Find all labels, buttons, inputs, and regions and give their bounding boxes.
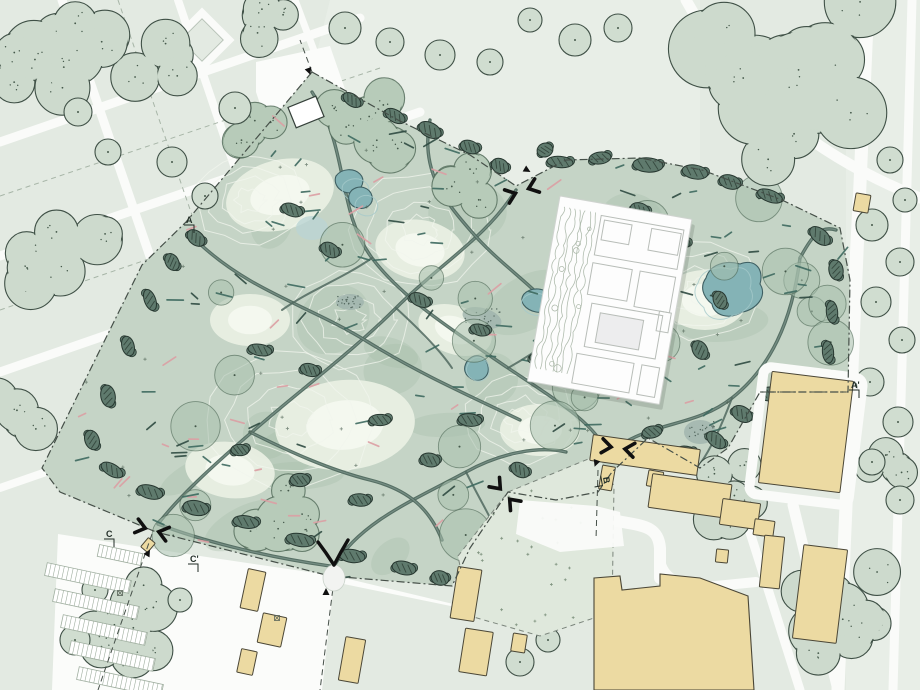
section-label: C — [106, 529, 113, 539]
scree-dot — [345, 299, 346, 300]
park-grove-speck — [246, 141, 247, 142]
tree-canopy-speck — [108, 644, 109, 645]
tree-canopy-speck — [137, 65, 138, 66]
tree-canopy-dot — [104, 233, 106, 235]
planting-tick — [486, 356, 495, 357]
tree-canopy-speck — [283, 12, 284, 13]
tree-dot — [74, 639, 76, 641]
park-grove-dot — [478, 199, 480, 201]
tree-canopy-speck — [142, 82, 143, 83]
tree-canopy-dot — [132, 627, 134, 629]
tree-dot — [871, 461, 873, 463]
tree-canopy-speck — [44, 425, 45, 426]
tree-canopy-speck — [16, 89, 17, 90]
park-grove-speck — [392, 139, 393, 140]
park-tree-dot — [430, 277, 432, 279]
tree-canopy-speck — [50, 277, 51, 278]
scree-dot — [341, 302, 342, 303]
tree-canopy-speck — [908, 478, 909, 479]
tree-canopy-dot — [176, 75, 178, 77]
tree-canopy-speck — [27, 268, 28, 269]
tree-canopy-dot — [885, 454, 887, 456]
tree-dot — [344, 27, 346, 29]
park-tree-dot — [341, 244, 343, 246]
park-grove-speck — [285, 485, 286, 486]
tree-canopy-dot — [842, 618, 844, 620]
tree-canopy-speck — [770, 170, 771, 171]
tree-dot — [871, 224, 873, 226]
tree-canopy-speck — [788, 87, 789, 88]
scree-dot — [689, 427, 690, 428]
tree-canopy-speck — [81, 12, 82, 13]
tree-canopy-speck — [168, 75, 169, 76]
park-grove-speck — [401, 142, 402, 143]
tree-canopy-speck — [859, 637, 860, 638]
tree-dot — [901, 339, 903, 341]
park-grove-speck — [387, 104, 388, 105]
park-grove-speck — [485, 207, 486, 208]
building-mass — [594, 574, 754, 690]
scree-dot — [465, 318, 466, 319]
scree-dot — [691, 427, 692, 428]
tree-canopy-speck — [848, 620, 849, 621]
tree-canopy-dot — [859, 1, 861, 3]
tree-dot — [94, 589, 96, 591]
scree-dot — [694, 432, 695, 433]
tree-canopy-speck — [886, 454, 887, 455]
tree-canopy-speck — [850, 626, 851, 627]
section-label: C' — [190, 554, 199, 564]
park-grove-dot — [469, 168, 471, 170]
park-grove-speck — [476, 168, 477, 169]
tree-canopy-speck — [49, 225, 50, 226]
tree-canopy-speck — [849, 119, 850, 120]
tree-canopy-speck — [111, 50, 112, 51]
planting-tick — [416, 395, 424, 396]
park-grove-speck — [379, 100, 380, 101]
scree-dot — [348, 303, 349, 304]
park-grove-speck — [308, 515, 309, 516]
park-grove-speck — [274, 521, 275, 522]
tree-canopy-speck — [156, 601, 157, 602]
planting-tick — [431, 243, 442, 244]
tree-canopy-speck — [730, 526, 731, 527]
building — [753, 519, 775, 538]
tree-canopy-speck — [261, 45, 262, 46]
park-grove-dot — [382, 104, 384, 106]
scree-dot — [498, 312, 499, 313]
tree-canopy-speck — [11, 61, 12, 62]
tree-canopy-speck — [792, 135, 793, 136]
building — [758, 371, 853, 492]
tree-canopy-speck — [728, 25, 729, 26]
park-grove-speck — [335, 106, 336, 107]
tree-canopy-speck — [155, 652, 156, 653]
scree-dot — [713, 425, 714, 426]
park-tree-dot — [554, 425, 556, 427]
tree-canopy-speck — [68, 60, 69, 61]
scree-dot — [695, 435, 696, 436]
planting-tick — [374, 259, 387, 260]
scree-dot — [493, 315, 494, 316]
tree-canopy-dot — [901, 472, 903, 474]
planting-tick — [729, 386, 739, 387]
tree-canopy-speck — [37, 53, 38, 54]
scree-dot — [484, 316, 485, 317]
tree-canopy-speck — [907, 471, 908, 472]
tree-canopy-speck — [106, 638, 107, 639]
tree-canopy-speck — [47, 227, 48, 228]
tree-canopy-speck — [35, 245, 36, 246]
tree-canopy-speck — [713, 467, 714, 468]
park-grove-dot — [368, 116, 370, 118]
tree-canopy-dot — [62, 87, 64, 89]
park-grove-speck — [283, 522, 284, 523]
tree-canopy-speck — [67, 270, 68, 271]
park-grove-speck — [395, 144, 396, 145]
tree-canopy-speck — [767, 167, 768, 168]
tree-dot — [179, 599, 181, 601]
tree-canopy-speck — [17, 85, 18, 86]
tree-canopy-speck — [163, 40, 164, 41]
building — [853, 193, 871, 213]
tree-canopy-speck — [19, 405, 20, 406]
scree-dot — [706, 427, 707, 428]
tree-canopy-speck — [258, 26, 259, 27]
park-grove-dot — [451, 186, 453, 188]
park-grove-speck — [290, 486, 291, 487]
tree-dot — [889, 159, 891, 161]
tree-canopy-speck — [708, 476, 709, 477]
tree-canopy-dot — [134, 76, 136, 78]
park-grove-speck — [348, 125, 349, 126]
tree-canopy-dot — [282, 14, 284, 16]
tree-canopy-dot — [767, 158, 769, 160]
tree-canopy-speck — [172, 33, 173, 34]
scree-dot — [337, 304, 338, 305]
tree-canopy-dot — [56, 231, 58, 233]
tree-canopy-speck — [893, 456, 894, 457]
park-grove-dot — [277, 528, 279, 530]
planting-tick — [783, 225, 791, 226]
tree-canopy-speck — [740, 68, 741, 69]
scree-dot — [490, 320, 491, 321]
tree-dot — [529, 19, 531, 21]
tree-canopy-speck — [186, 66, 187, 67]
tree-dot — [204, 195, 206, 197]
park-grove-dot — [376, 139, 378, 141]
scree-dot — [353, 303, 354, 304]
park-grove-speck — [446, 188, 447, 189]
tree-canopy-speck — [796, 85, 797, 86]
tree-canopy-speck — [889, 451, 890, 452]
park-tree-dot — [452, 494, 454, 496]
tree-canopy-speck — [887, 564, 888, 565]
scree-dot — [344, 303, 345, 304]
tree-canopy-dot — [742, 77, 744, 79]
scree-dot — [338, 301, 339, 302]
tree-canopy-speck — [808, 650, 809, 651]
scree-dot — [352, 301, 353, 302]
tree-canopy-dot — [798, 69, 800, 71]
tree-canopy-speck — [14, 409, 15, 410]
tree-canopy-speck — [818, 657, 819, 658]
gate-court — [323, 565, 345, 591]
tree-canopy-speck — [100, 239, 101, 240]
park-grove-speck — [272, 120, 273, 121]
tree-canopy-speck — [165, 38, 166, 39]
park-grove-speck — [250, 116, 251, 117]
tree-canopy-speck — [61, 58, 62, 59]
tree-canopy-speck — [146, 608, 147, 609]
tree-dot — [107, 151, 109, 153]
scree-dot — [712, 427, 713, 428]
tree-canopy-speck — [836, 99, 837, 100]
tree-canopy-speck — [733, 81, 734, 82]
tree-canopy-speck — [268, 4, 269, 5]
park-grove-speck — [465, 161, 466, 162]
scree-dot — [491, 308, 492, 309]
park-grove-dot — [397, 148, 399, 150]
tree-canopy-dot — [13, 52, 15, 54]
building — [715, 549, 728, 563]
tree-canopy-speck — [258, 12, 259, 13]
park-grove-speck — [360, 118, 361, 119]
tree-canopy-speck — [853, 605, 854, 606]
tree-canopy-speck — [110, 232, 111, 233]
tree-canopy-speck — [285, 8, 286, 9]
park-grove-speck — [310, 519, 311, 520]
tree-canopy-speck — [81, 31, 82, 32]
park-grove-dot — [333, 108, 335, 110]
tree-canopy-speck — [145, 609, 146, 610]
park-grove-speck — [376, 146, 377, 147]
tree-canopy-dot — [74, 22, 76, 24]
tree-canopy-speck — [744, 499, 745, 500]
planting-tick — [690, 191, 697, 192]
tree-canopy-speck — [264, 26, 265, 27]
tree-canopy-speck — [284, 8, 285, 9]
scree-dot — [342, 299, 343, 300]
tree-canopy-speck — [726, 27, 727, 28]
park-grove-speck — [353, 125, 354, 126]
tree-canopy-speck — [714, 469, 715, 470]
tree-canopy-dot — [261, 8, 263, 10]
planting-tick — [749, 251, 758, 252]
planting-tick — [798, 284, 806, 285]
scree-dot — [488, 321, 489, 322]
tree-canopy-speck — [861, 622, 862, 623]
tree-canopy-speck — [24, 265, 25, 266]
tree-canopy-speck — [51, 237, 52, 238]
park-grove-speck — [373, 150, 374, 151]
tree-canopy-speck — [172, 69, 173, 70]
planting-tick — [172, 452, 187, 453]
park-grove-speck — [236, 143, 237, 144]
park-grove-speck — [304, 529, 305, 530]
scree-dot — [705, 428, 706, 429]
tree-canopy-speck — [859, 14, 860, 15]
park-grove-speck — [274, 537, 275, 538]
scree-dot — [713, 421, 714, 422]
tree-canopy-speck — [250, 26, 251, 27]
park-tree-dot — [465, 534, 467, 536]
park-grove-speck — [476, 206, 477, 207]
tree-canopy-speck — [76, 50, 77, 51]
scree-dot — [484, 318, 485, 319]
park-grove-speck — [332, 105, 333, 106]
tree-canopy-speck — [31, 67, 32, 68]
tree-dot — [389, 41, 391, 43]
tree-canopy-speck — [866, 113, 867, 114]
tree-canopy-speck — [10, 84, 11, 85]
tree-dot — [489, 61, 491, 63]
scree-dot — [359, 304, 360, 305]
scree-dot — [357, 295, 358, 296]
tree-canopy-dot — [143, 584, 145, 586]
scree-dot — [359, 306, 360, 307]
tree-dot — [77, 111, 79, 113]
park-grove-speck — [480, 199, 481, 200]
tree-canopy-speck — [842, 10, 843, 11]
tree-dot — [519, 661, 521, 663]
tree-canopy-speck — [128, 81, 129, 82]
tree-canopy-dot — [733, 495, 735, 497]
scree-dot — [711, 426, 712, 427]
tree-canopy-dot — [34, 59, 36, 61]
tree-canopy-dot — [16, 409, 18, 411]
tree-canopy-dot — [876, 571, 878, 573]
tree-dot — [547, 639, 549, 641]
tree-canopy-speck — [5, 46, 6, 47]
tree-canopy-dot — [35, 428, 37, 430]
park-tree-dot — [195, 425, 197, 427]
park-tree-dot — [723, 265, 725, 267]
tree-canopy-speck — [758, 149, 759, 150]
park-grove-dot — [250, 530, 252, 532]
masterplan-svg: AA'BCC' — [0, 0, 920, 690]
park-tree-dot — [458, 446, 460, 448]
park-tree-dot — [473, 340, 475, 342]
tree-canopy-speck — [896, 474, 897, 475]
tree-canopy-speck — [799, 76, 800, 77]
tree-dot — [234, 107, 236, 109]
park-tree-dot — [584, 396, 586, 398]
tree-canopy-dot — [13, 81, 15, 83]
tree-dot — [574, 39, 576, 41]
planting-tick — [175, 456, 186, 457]
tree-canopy-speck — [745, 461, 746, 462]
park-grove-speck — [340, 134, 341, 135]
park-grove-speck — [241, 142, 242, 143]
park-tree-dot — [234, 374, 236, 376]
park-grove-speck — [473, 173, 474, 174]
tree-canopy-speck — [137, 651, 138, 652]
tree-canopy-speck — [50, 91, 51, 92]
scree-dot — [702, 429, 703, 430]
planting-tick — [574, 428, 585, 429]
park-grove-speck — [373, 145, 374, 146]
tree-dot — [899, 499, 901, 501]
park-grove-speck — [336, 110, 337, 111]
tree-canopy-speck — [869, 568, 870, 569]
site-plan-canvas: AA'BCC' — [0, 0, 920, 690]
tree-canopy-speck — [835, 64, 836, 65]
tree-canopy-speck — [63, 61, 64, 62]
park-grove-speck — [459, 192, 460, 193]
park-tree-dot — [474, 297, 476, 299]
tree-dot — [869, 381, 871, 383]
tree-canopy-speck — [734, 76, 735, 77]
tree-canopy-speck — [102, 48, 103, 49]
park-grove-dot — [287, 490, 289, 492]
tree-dot — [897, 421, 899, 423]
park-grove-dot — [241, 139, 243, 141]
tree-canopy-dot — [817, 652, 819, 654]
tree-canopy-speck — [42, 418, 43, 419]
tree-canopy-speck — [78, 15, 79, 16]
tree-canopy-dot — [744, 464, 746, 466]
park-grove-speck — [276, 130, 277, 131]
park-grove-speck — [454, 181, 455, 182]
scree-dot — [689, 436, 690, 437]
tree-canopy-dot — [152, 607, 154, 609]
park-grove-dot — [345, 126, 347, 128]
tree-canopy-speck — [259, 2, 260, 3]
tree-canopy-dot — [714, 473, 716, 475]
planting-tick — [301, 191, 309, 192]
tree-canopy-dot — [101, 41, 103, 43]
tree-canopy-dot — [165, 43, 167, 45]
park-grove-speck — [280, 490, 281, 491]
tree-dot — [171, 161, 173, 163]
park-grove-speck — [375, 112, 376, 113]
building — [511, 633, 528, 653]
tree-dot — [875, 301, 877, 303]
pond — [349, 187, 373, 208]
tree-canopy-speck — [887, 582, 888, 583]
scree-dot — [496, 308, 497, 309]
tree-canopy-speck — [33, 425, 34, 426]
tree-dot — [439, 54, 441, 56]
tree-canopy-speck — [795, 141, 796, 142]
scree-dot — [355, 297, 356, 298]
scree-dot — [337, 296, 338, 297]
tree-dot — [617, 27, 619, 29]
planting-tick — [800, 297, 812, 298]
park-tree-dot — [784, 270, 786, 272]
tree-canopy-dot — [63, 66, 65, 68]
park-grove-dot — [254, 120, 256, 122]
scree-dot — [353, 298, 354, 299]
lawn-core — [228, 306, 272, 335]
tree-canopy-speck — [739, 465, 740, 466]
tree-canopy-dot — [793, 133, 795, 135]
section-label: A — [186, 215, 193, 225]
section-label: A' — [851, 380, 860, 390]
tree-canopy-dot — [257, 32, 259, 34]
scree-dot — [346, 301, 347, 302]
tree-canopy-speck — [41, 52, 42, 53]
tree-canopy-speck — [736, 489, 737, 490]
scree-dot — [700, 429, 701, 430]
tree-canopy-speck — [61, 266, 62, 267]
scree-dot — [697, 433, 698, 434]
scree-dot — [352, 306, 353, 307]
tree-canopy-dot — [850, 112, 852, 114]
tree-canopy-speck — [154, 647, 155, 648]
tree-dot — [904, 199, 906, 201]
